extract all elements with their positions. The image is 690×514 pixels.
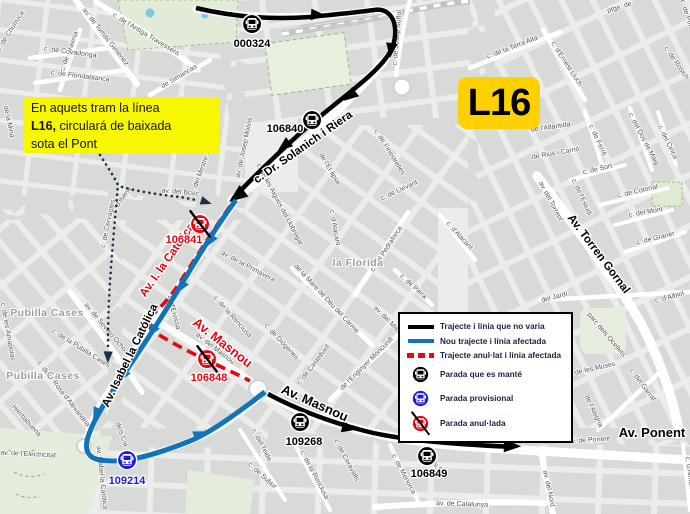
- legend-row: Parada provisional: [407, 389, 567, 408]
- transit-map-infographic: c. de Churruca c. de Gravina av. de Tomá…: [0, 0, 690, 514]
- annotation-line-2: circulará de baixada: [56, 119, 171, 133]
- legend-row: Nou trajecte i línia afectada: [407, 337, 567, 346]
- route-name-label: Av. Ponent: [619, 425, 686, 440]
- place-label: Pubilla Cases: [10, 307, 83, 319]
- bus-stop-id: 106849: [411, 468, 448, 480]
- bus-stop-icon: [302, 110, 321, 129]
- legend-row: Parada anul·lada: [407, 414, 567, 433]
- legend-label: Parada provisional: [440, 394, 513, 403]
- legend-label: Parada que es manté: [440, 370, 522, 379]
- bus-stop-id: 106840: [267, 123, 304, 135]
- bus-stop-icon: [417, 446, 436, 465]
- black-line-swatch: [407, 325, 434, 329]
- legend-row: Trajecte i línia que no varia: [407, 322, 567, 331]
- legend-row: Parada que es manté: [407, 365, 567, 384]
- legend: Trajecte i línia que no varia Nou trajec…: [398, 312, 573, 443]
- annotation-line-1: En aquets tram la línea: [31, 101, 160, 115]
- bus-stop-id: 106848: [191, 372, 228, 384]
- bus-stop-id: 109214: [109, 475, 147, 487]
- legend-row: Trajecte anul·lat i línia afectada: [407, 351, 567, 360]
- bus-stop-icon: [242, 14, 261, 33]
- annotation-line-3: sota el Pont: [31, 137, 97, 151]
- legend-label: Nou trajecte i línia afectada: [440, 337, 546, 346]
- line-badge: L16: [458, 77, 540, 129]
- annotation-line-bold: L16,: [31, 119, 56, 133]
- legend-label: Parada anul·lada: [440, 419, 506, 428]
- annotation-note: En aquets tram la línea L16, circulará d…: [23, 97, 220, 153]
- legend-label: Trajecte anul·lat i línia afectada: [440, 351, 561, 360]
- blue-bus-stop-icon: [407, 389, 434, 408]
- bus-stop-id: 106841: [166, 234, 203, 246]
- blue-line-swatch: [407, 339, 434, 343]
- red-crossed-bus-stop-icon: [407, 414, 434, 433]
- map-canvas: c. de Churruca c. de Gravina av. de Tomá…: [0, 0, 690, 514]
- bus-stop-provisional-icon: [117, 450, 136, 469]
- black-bus-stop-icon: [407, 365, 434, 384]
- place-label: Pubilla Cases: [6, 370, 79, 382]
- red-dashed-line-swatch: [407, 353, 434, 358]
- bus-stop-id: 000324: [234, 38, 272, 50]
- legend-label: Trajecte i línia que no varia: [440, 322, 545, 331]
- place-label: la Florida: [333, 257, 384, 269]
- bus-stop-id: 109268: [286, 436, 323, 448]
- bus-stop-icon: [290, 412, 309, 431]
